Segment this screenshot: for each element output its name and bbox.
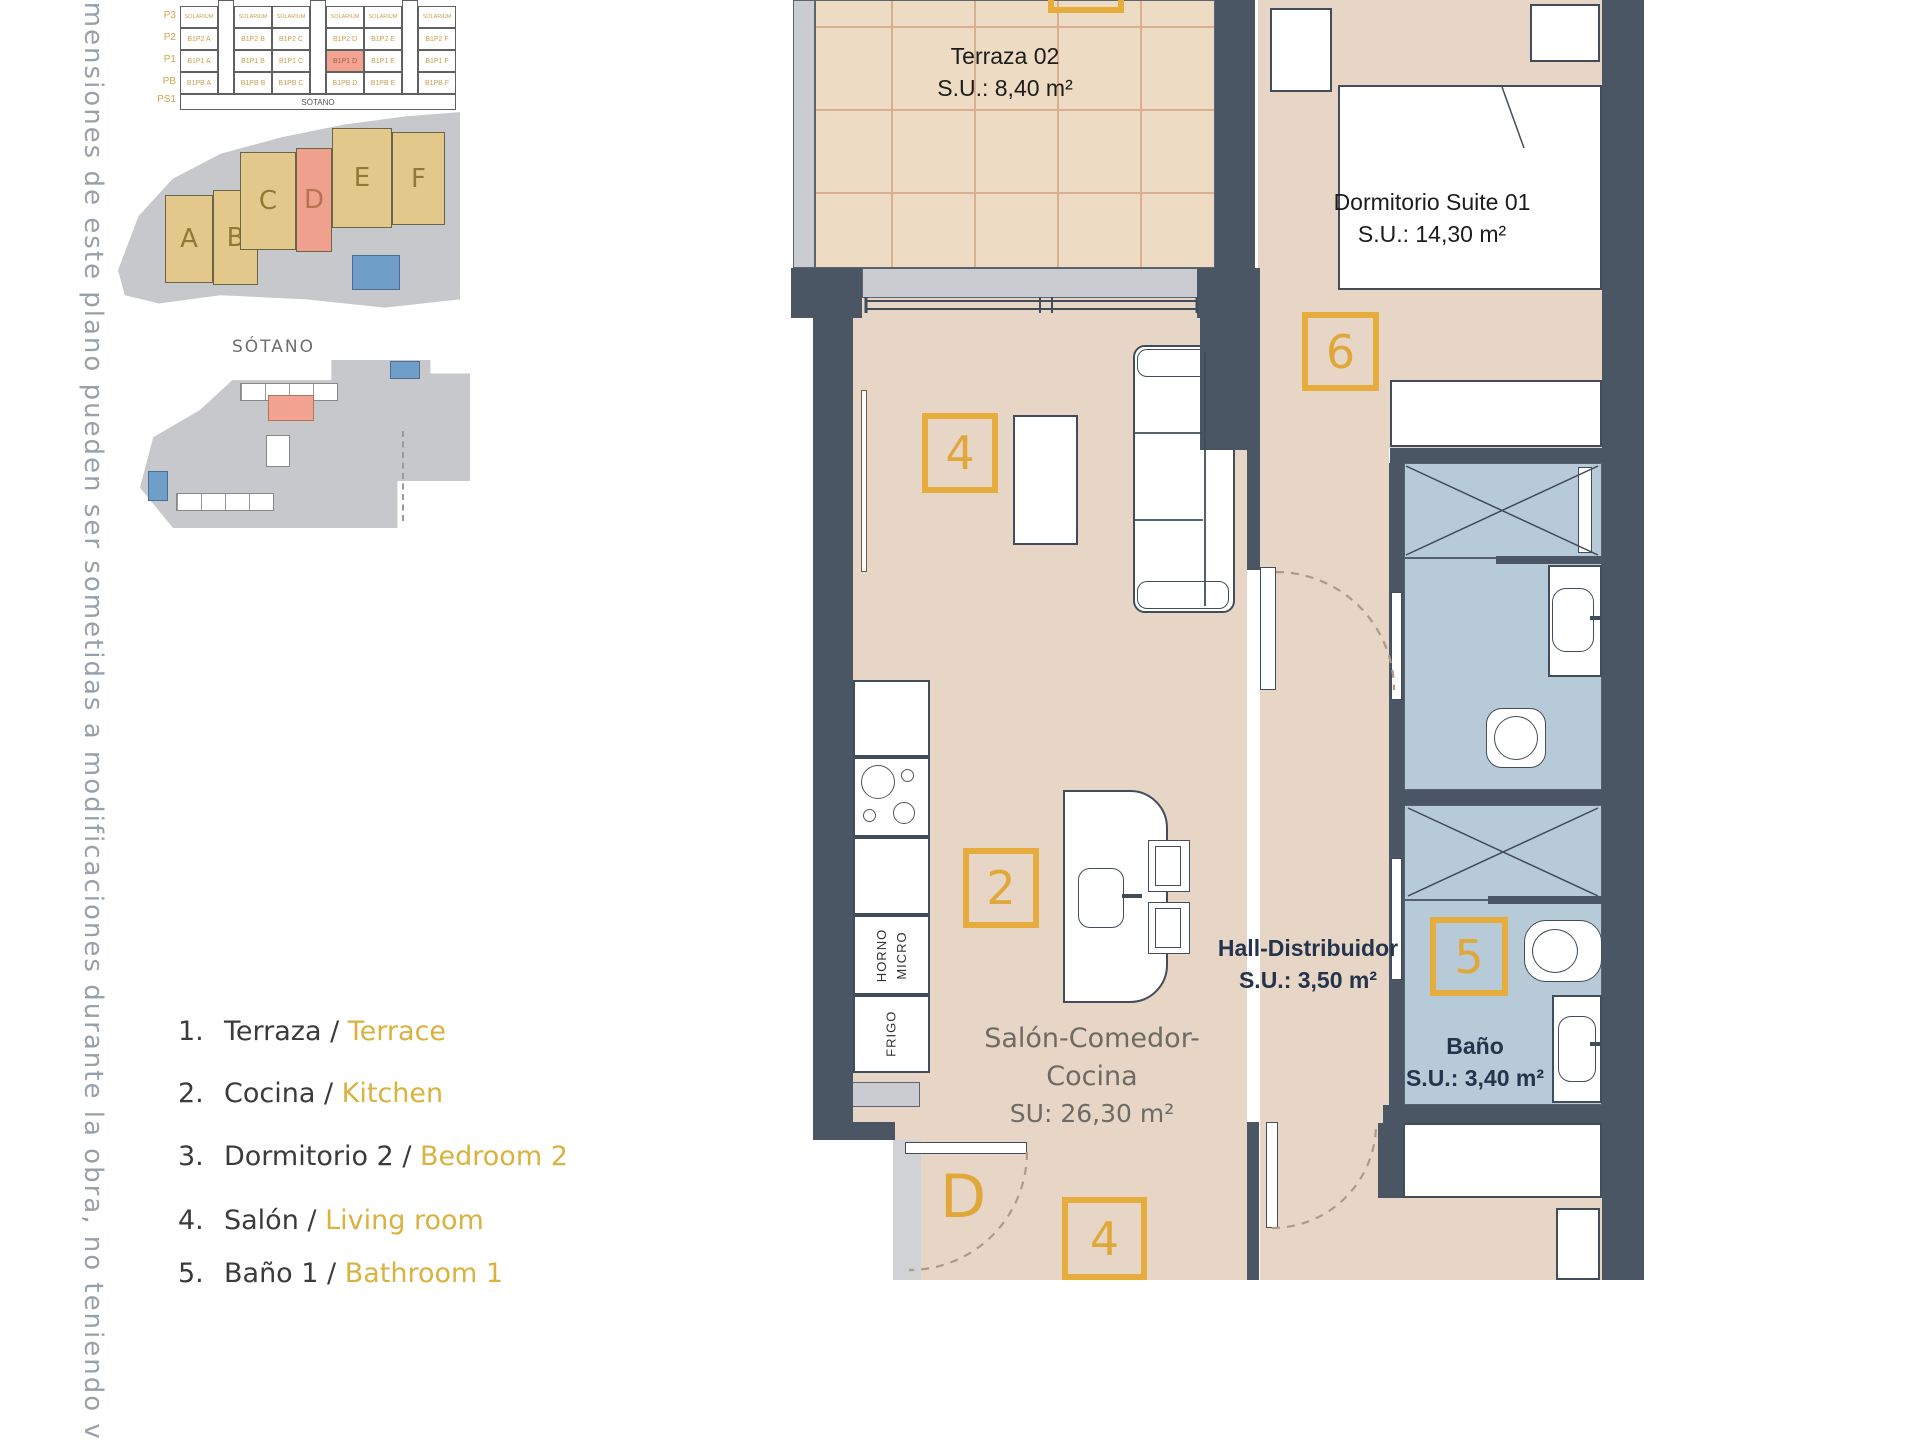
wall-left-exterior xyxy=(813,318,853,1122)
ensuite-washbasin xyxy=(1552,588,1594,652)
wall-living-suite xyxy=(1200,318,1260,450)
suite-wardrobe-cabinet xyxy=(1270,8,1332,92)
micro-label: MICRO xyxy=(893,931,908,979)
bedroom2-wardrobe xyxy=(1403,1123,1602,1198)
wardrobe-shelf xyxy=(1496,556,1602,564)
oven-label: HORNO xyxy=(874,928,889,981)
nightstand xyxy=(1530,4,1600,62)
room-name: Dormitorio Suite 01 xyxy=(1332,186,1532,218)
wall-right-exterior xyxy=(1602,0,1644,1280)
suite-label: Dormitorio Suite 01 S.U.: 14,30 m² xyxy=(1332,186,1532,250)
entry-mat xyxy=(852,1082,920,1107)
wall xyxy=(1378,1123,1403,1198)
stool xyxy=(1148,840,1190,892)
fridge-label: FRIGO xyxy=(884,1011,899,1057)
fridge-unit: FRIGO xyxy=(853,995,930,1073)
stool xyxy=(1148,902,1190,954)
room-area: S.U.: 14,30 m² xyxy=(1332,218,1532,250)
radiator xyxy=(861,390,867,572)
marker-1-terrace-partial xyxy=(1048,0,1124,13)
terrace-label: Terraza 02 S.U.: 8,40 m² xyxy=(905,40,1105,104)
oven-microwave-unit: HORNO MICRO xyxy=(853,915,930,995)
hall-label: Hall-Distribuidor S.U.: 3,50 m² xyxy=(1208,932,1408,996)
marker-2-kitchen: 2 xyxy=(963,848,1039,928)
basin-tap xyxy=(1590,1042,1602,1046)
room-area: S.U.: 3,40 m² xyxy=(1376,1062,1574,1094)
basin-tap xyxy=(1590,616,1602,620)
wall-hall xyxy=(1247,450,1260,570)
room-area: S.U.: 8,40 m² xyxy=(905,72,1105,104)
bathroom-toilet-bowl xyxy=(1532,929,1578,973)
room-name: Baño xyxy=(1376,1030,1574,1062)
wall xyxy=(791,268,862,318)
burner xyxy=(901,769,914,782)
marker-4-living: 4 xyxy=(922,413,998,493)
room-name: Salón-Comedor-Cocina xyxy=(942,1020,1242,1096)
bedroom2-door-leaf xyxy=(1266,1122,1278,1228)
bathroom-label: Baño S.U.: 3,40 m² xyxy=(1376,1030,1574,1094)
suite-wardrobe xyxy=(1404,463,1602,558)
wall-terrace-bedroom xyxy=(1215,0,1255,270)
burner xyxy=(861,765,895,799)
entry-door-leaf xyxy=(905,1142,1027,1154)
burner xyxy=(863,809,876,822)
suite-door-leaf xyxy=(1260,567,1276,690)
suite-dresser xyxy=(1390,380,1602,447)
wall-hall xyxy=(1247,1122,1259,1280)
marker-5-bathroom: 5 xyxy=(1430,917,1508,996)
ensuite-sliding-door xyxy=(1391,592,1402,700)
kitchen-cabinet xyxy=(853,680,930,757)
wall xyxy=(813,1122,895,1140)
marker-4-salon-bottom: 4 xyxy=(1062,1197,1147,1280)
apartment-floor-plan: HORNO MICRO FRIGO xyxy=(0,0,1920,1280)
wall-hall-bathrooms xyxy=(1389,463,1404,1123)
ensuite-toilet-bowl xyxy=(1494,716,1538,760)
salon-label: Salón-Comedor-Cocina SU: 26,30 m² xyxy=(942,1020,1242,1131)
coffee-table xyxy=(1013,415,1078,545)
entry-threshold xyxy=(893,1140,921,1280)
room-area: S.U.: 3,50 m² xyxy=(1208,964,1408,996)
bathroom-wardrobe xyxy=(1404,805,1602,900)
kitchen-cabinet xyxy=(853,837,930,915)
entry-door-letter: D xyxy=(940,1162,986,1232)
burner xyxy=(893,802,915,824)
wall-bathrooms-divider xyxy=(1404,790,1644,805)
window-sill xyxy=(862,268,1215,298)
wall-bathroom-bottom xyxy=(1383,1105,1644,1123)
sink-tap xyxy=(1122,894,1142,898)
island-sink xyxy=(1078,868,1124,928)
wall-pillar xyxy=(1197,268,1260,318)
wardrobe-shelf xyxy=(1488,896,1602,904)
room-name: Terraza 02 xyxy=(905,40,1105,72)
marker-6-suite: 6 xyxy=(1302,312,1379,391)
room-area: SU: 26,30 m² xyxy=(942,1096,1242,1131)
terrace-left-parapet xyxy=(793,0,815,268)
wardrobe-door xyxy=(1578,467,1592,553)
sofa-armrest xyxy=(1137,581,1229,609)
room-name: Hall-Distribuidor xyxy=(1208,932,1408,964)
cooktop xyxy=(853,757,930,837)
bedroom2-nightstand xyxy=(1556,1208,1600,1280)
